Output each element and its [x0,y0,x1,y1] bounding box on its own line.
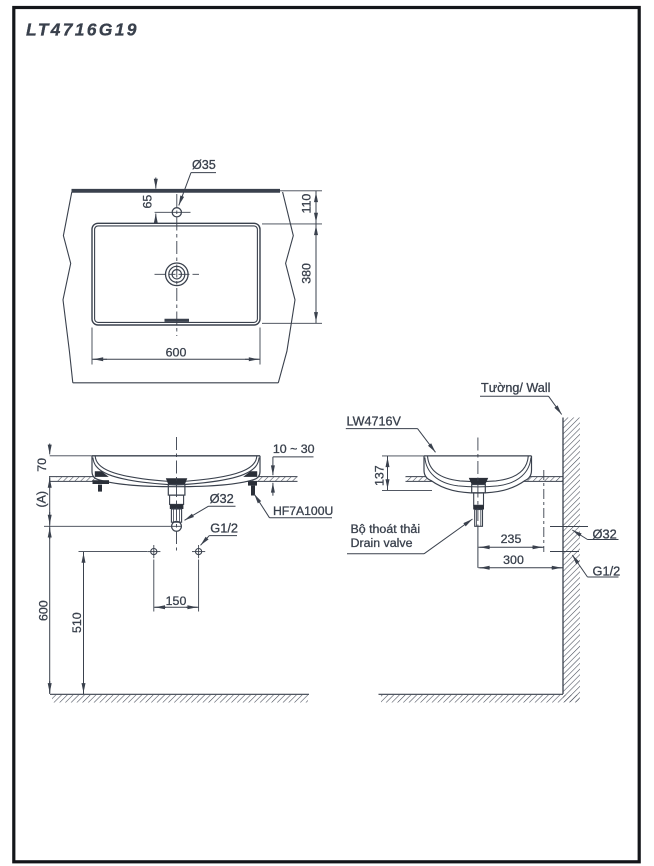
svg-text:70: 70 [35,458,49,472]
svg-text:Bộ thoát thải: Bộ thoát thải [351,522,421,536]
svg-text:LT4716G19: LT4716G19 [26,20,139,40]
svg-text:600: 600 [166,345,187,359]
svg-text:HF7A100U: HF7A100U [273,504,333,518]
svg-text:150: 150 [166,594,187,608]
svg-text:Ø32: Ø32 [210,491,234,506]
svg-text:10 ~ 30: 10 ~ 30 [273,442,315,456]
svg-text:Ø35: Ø35 [192,158,216,172]
svg-text:LW4716V: LW4716V [347,414,402,428]
svg-text:510: 510 [70,612,84,633]
svg-text:235: 235 [501,532,522,546]
svg-text:G1/2: G1/2 [593,564,621,579]
svg-text:300: 300 [503,553,524,567]
svg-text:380: 380 [300,263,314,284]
svg-text:137: 137 [373,465,387,486]
svg-text:110: 110 [300,194,314,214]
svg-text:600: 600 [36,600,50,621]
svg-text:Tường/ Wall: Tường/ Wall [481,381,550,395]
svg-text:G1/2: G1/2 [210,521,238,536]
svg-text:Drain valve: Drain valve [351,536,413,550]
svg-text:(A): (A) [35,491,49,508]
svg-text:65: 65 [140,195,154,209]
